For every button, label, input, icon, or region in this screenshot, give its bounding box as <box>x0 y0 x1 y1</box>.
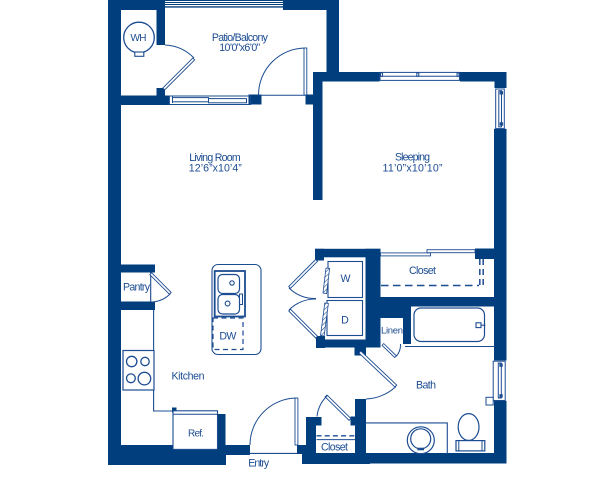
svg-text:W: W <box>341 273 351 285</box>
svg-text:WH: WH <box>131 33 147 44</box>
svg-text:Closet: Closet <box>321 442 348 454</box>
svg-text:11’0”x10’10”: 11’0”x10’10” <box>383 163 443 175</box>
svg-text:Ref.: Ref. <box>188 429 204 440</box>
svg-text:10’0”x6’0”: 10’0”x6’0” <box>219 42 260 54</box>
svg-text:Bath: Bath <box>416 380 436 392</box>
svg-text:Entry: Entry <box>248 458 270 470</box>
svg-text:12’6”x10’4”: 12’6”x10’4” <box>189 163 242 175</box>
svg-text:D: D <box>341 315 349 327</box>
svg-text:Pantry: Pantry <box>123 281 151 293</box>
svg-text:Linen: Linen <box>381 326 403 337</box>
svg-text:Kitchen: Kitchen <box>172 371 205 383</box>
svg-text:Closet: Closet <box>409 265 436 277</box>
svg-text:DW: DW <box>219 330 236 342</box>
